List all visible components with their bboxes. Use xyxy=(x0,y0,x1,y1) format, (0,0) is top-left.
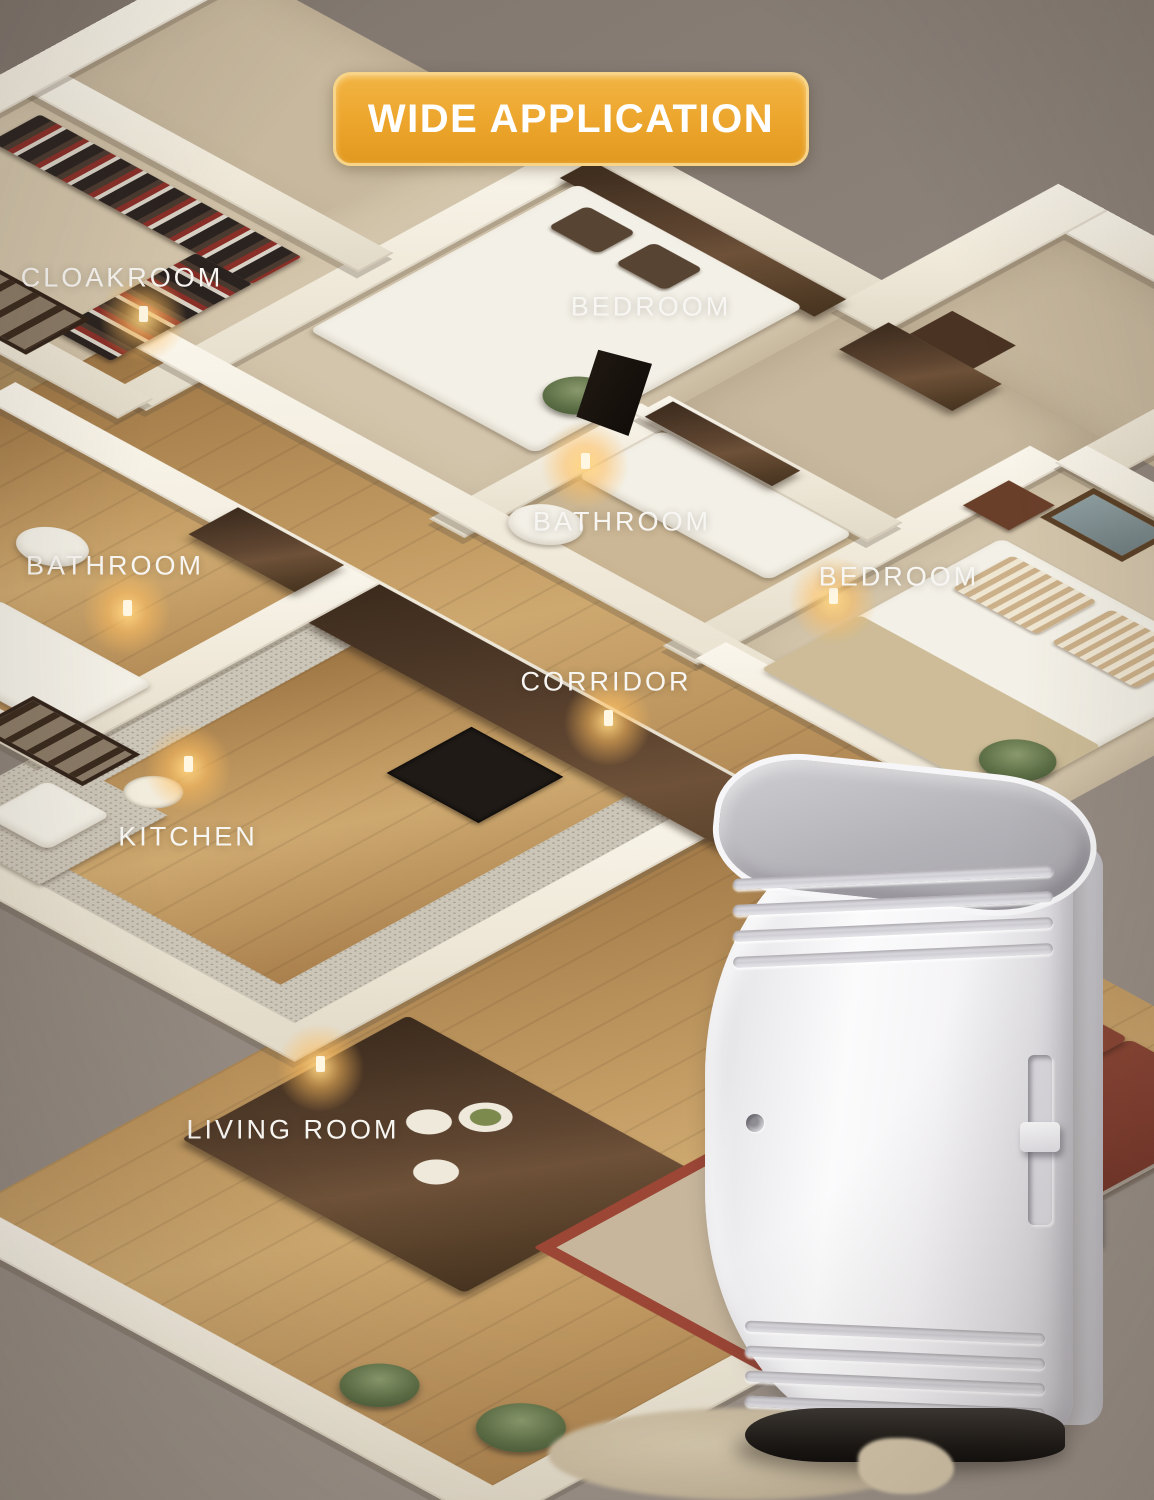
room-label-bathroom-middle: BATHROOM xyxy=(533,507,711,538)
room-label-living-room: LIVING ROOM xyxy=(186,1115,399,1146)
scene: CLOAKROOM BEDROOM BATHROOM BATHROOM BEDR… xyxy=(0,0,1154,1500)
room-label-cloakroom: CLOAKROOM xyxy=(21,263,224,294)
room-label-bedroom-top: BEDROOM xyxy=(571,292,732,323)
banner-label: WIDE APPLICATION xyxy=(368,97,774,142)
room-label-kitchen: KITCHEN xyxy=(118,822,258,853)
banner: WIDE APPLICATION xyxy=(333,72,809,166)
room-label-corridor: CORRIDOR xyxy=(521,667,692,698)
led-indicator xyxy=(746,1114,764,1132)
volume-slider xyxy=(1020,1122,1060,1152)
room-label-bedroom-right: BEDROOM xyxy=(819,562,980,593)
product-device xyxy=(705,765,1105,1475)
room-label-bathroom-left: BATHROOM xyxy=(26,551,204,582)
